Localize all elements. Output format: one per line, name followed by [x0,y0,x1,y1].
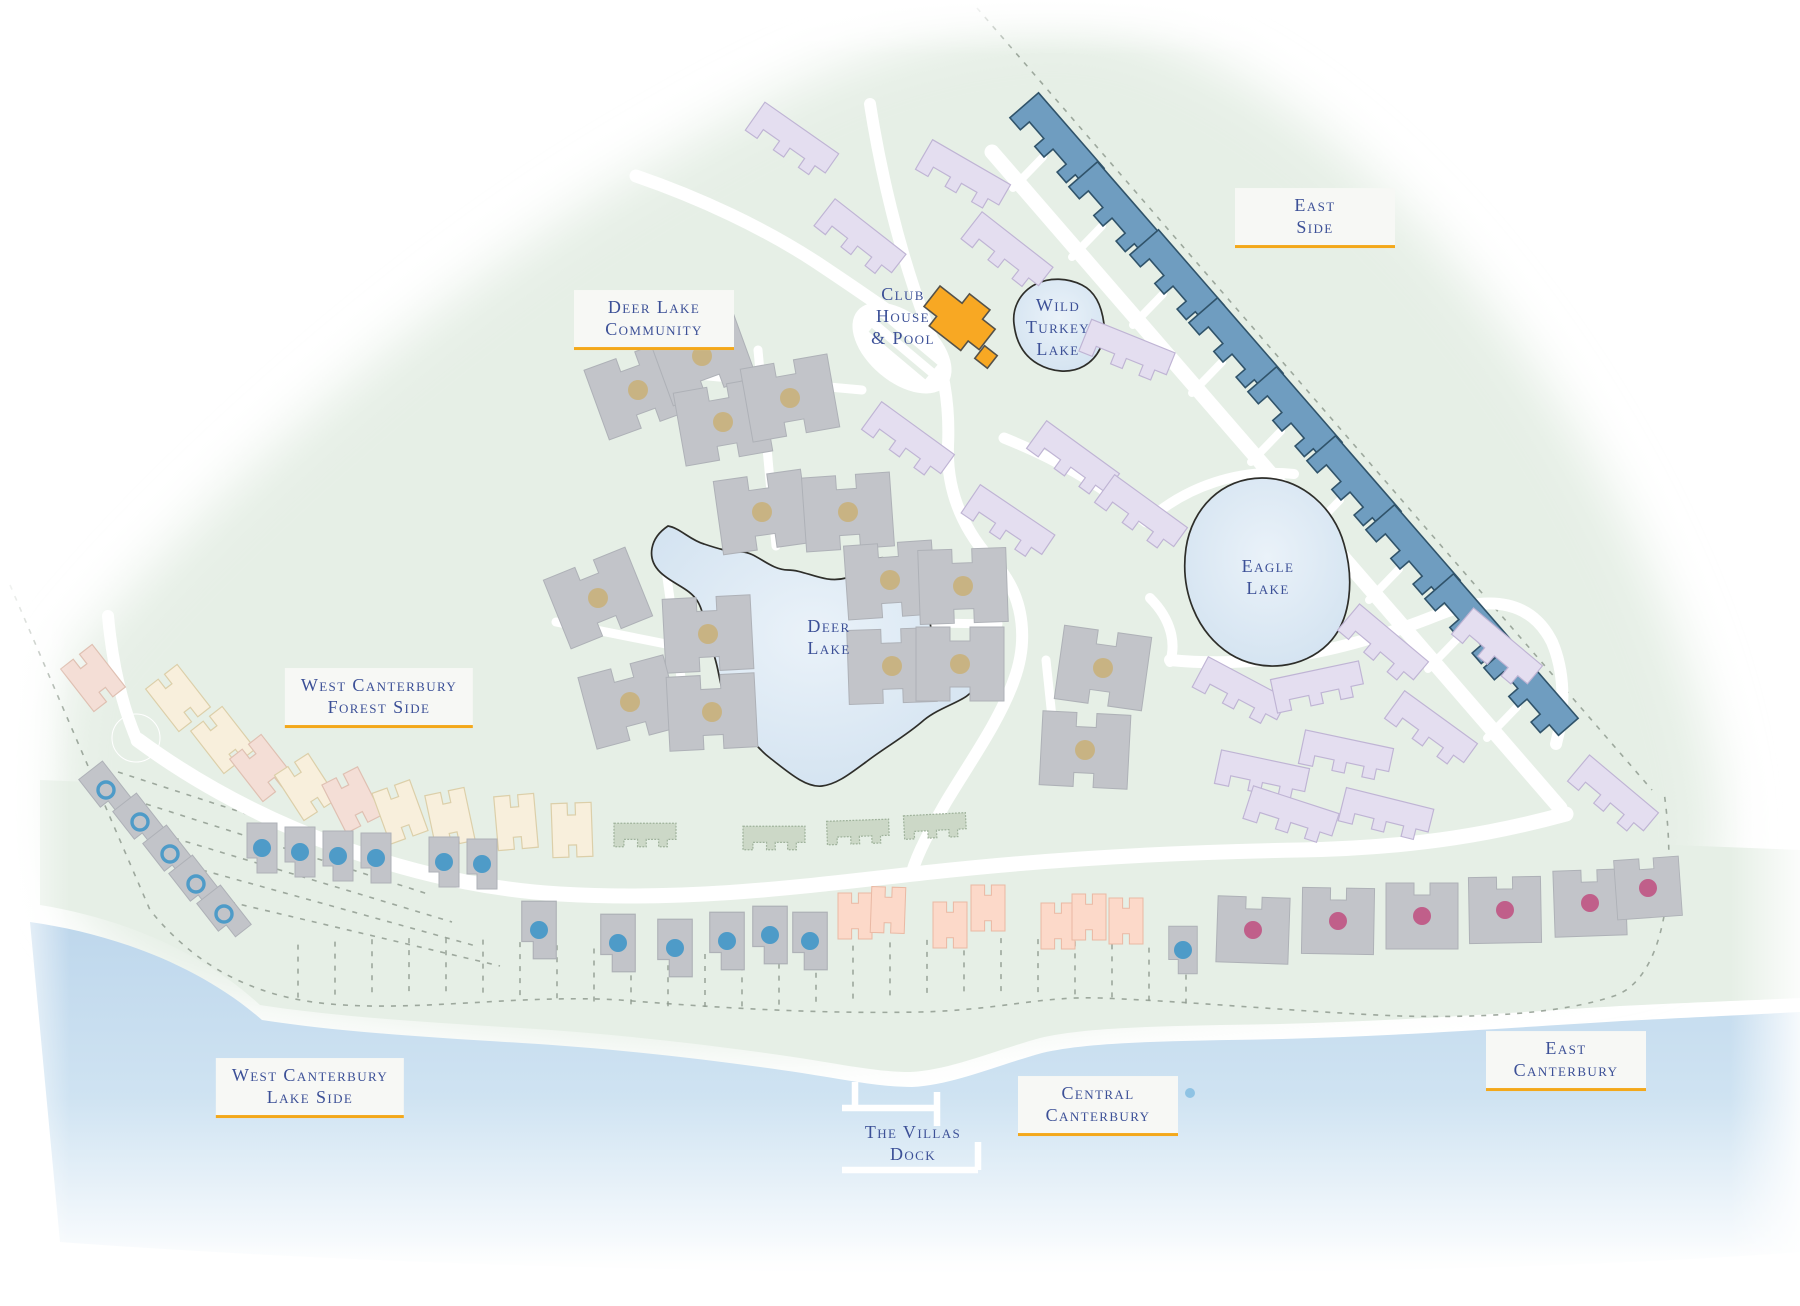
label-line: Eagle [1242,556,1295,578]
label-line: Lake [807,638,850,660]
lot-dot-marker [713,412,733,432]
lot-dot-marker [329,847,347,865]
label-line: Lake [1242,578,1295,600]
label-line: Canterbury [1502,1060,1630,1082]
lot-dot-marker [838,502,858,522]
label-line: Deer Lake [590,297,718,319]
label-line: Lake [1026,339,1090,361]
lot-dot-marker [620,692,640,712]
lot-dot-marker [702,702,722,722]
label-line: Community [590,319,718,341]
label-line: Dock [865,1144,961,1166]
lot-dot-marker [1413,907,1431,925]
lot-dot-marker [1329,912,1347,930]
label-line: Side [1251,217,1379,239]
label-east-canterbury: East Canterbury [1486,1031,1646,1091]
lot-dot-marker [1174,941,1192,959]
lot-dot-marker [435,853,453,871]
lot-dot-marker [1581,894,1599,912]
label-line: & Pool [871,328,935,350]
lot-dot-marker [1244,921,1262,939]
lot-dot-marker [1093,658,1113,678]
label-line: House [871,306,935,328]
label-line: The Villas [865,1122,961,1144]
label-deer-lake-community: Deer Lake Community [574,290,734,350]
lot-dot-marker [882,656,902,676]
lot-dot-marker [752,502,772,522]
label-deer-lake: Deer Lake [807,616,850,660]
label-line: East [1502,1038,1630,1060]
label-club-house-pool: Club House & Pool [871,284,935,350]
lot-dot-marker [367,849,385,867]
label-line: Forest Side [301,697,457,719]
label-the-villas-dock: The Villas Dock [865,1122,961,1166]
label-eagle-lake: Eagle Lake [1242,556,1295,600]
lot-dot-marker [628,380,648,400]
label-line: East [1251,195,1379,217]
lot-dot-marker [1075,740,1095,760]
label-line: Club [871,284,935,306]
label-line: Canterbury [1034,1105,1162,1127]
label-line: Central [1034,1083,1162,1105]
community-site-map: East Side Deer Lake Community West Cante… [0,0,1800,1306]
lot-dot-marker [666,939,684,957]
lot-dot-marker [780,388,800,408]
lot-dot-marker [1639,879,1657,897]
lot-dot-marker [588,588,608,608]
label-line: Lake Side [232,1087,388,1109]
lot-dot-marker [473,855,491,873]
label-line: West Canterbury [301,675,457,697]
building-sage [903,813,966,840]
label-line: Turkey [1026,317,1090,339]
lot-dot-marker [718,932,736,950]
lot-dot-marker [950,654,970,674]
lot-dot-marker [609,934,627,952]
lot-dot-marker [1496,901,1514,919]
label-line: Deer [807,616,850,638]
lot-dot-marker [291,843,309,861]
label-line: West Canterbury [232,1065,388,1087]
lot-dot-marker [698,624,718,644]
lot-dot-marker [801,932,819,950]
label-wild-turkey-lake: Wild Turkey Lake [1026,295,1090,361]
label-east-side: East Side [1235,188,1395,248]
building-sage [614,823,676,847]
lot-dot-marker [530,921,548,939]
label-west-canterbury-lake-side: West Canterbury Lake Side [216,1058,404,1118]
lot-dot-marker [953,576,973,596]
label-central-canterbury: Central Canterbury [1018,1076,1178,1136]
building-sage [827,819,890,845]
lot-dot-marker [880,570,900,590]
water-marker [1185,1088,1195,1098]
building-sage [743,826,805,850]
label-line: Wild [1026,295,1090,317]
lot-dot-marker [253,839,271,857]
lot-dot-marker [761,926,779,944]
label-west-canterbury-forest-side: West Canterbury Forest Side [285,668,473,728]
